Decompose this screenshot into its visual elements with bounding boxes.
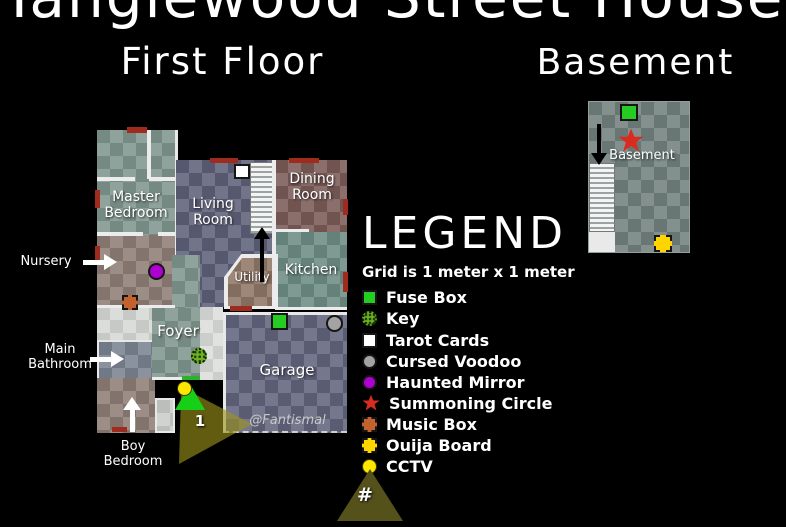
nursery-label: Nursery (12, 255, 80, 270)
basement-label: Basement (602, 149, 682, 164)
cctv-marker (177, 381, 192, 396)
music-box-marker (122, 295, 138, 310)
fuse-box-marker-basement (620, 104, 638, 121)
garage-label: Garage (242, 362, 332, 379)
door-marker (210, 158, 238, 163)
legend-item-haunted-mirror: Haunted Mirror (362, 372, 525, 392)
foyer-lower (152, 308, 200, 377)
ouija-board-marker (654, 235, 672, 252)
door-marker (230, 306, 252, 311)
basement-heading: Basement (533, 42, 738, 83)
door-marker (112, 427, 127, 432)
wall (149, 177, 175, 181)
tarot-cards-marker (234, 164, 250, 179)
main-bathroom-arrow (90, 357, 111, 362)
stairs-up-arrow (260, 238, 264, 282)
first-floor-heading: First Floor (120, 40, 325, 83)
legend-item-cctv: CCTV (362, 456, 433, 476)
nursery-arrow-head (104, 254, 117, 270)
master-bedroom-label: Master Bedroom (97, 190, 175, 221)
stairs-up-arrow-head (254, 227, 270, 239)
boy-bedroom-arrow (130, 409, 135, 432)
door-marker (127, 127, 147, 133)
cursed-voodoo-icon (362, 354, 377, 369)
foyer-hall-white (200, 307, 223, 380)
nursery-arrow (83, 260, 104, 265)
map-page: Tanglewood Street House First Floor Base… (0, 0, 786, 527)
wall (158, 232, 175, 236)
door-marker (289, 158, 319, 163)
legend-item-summoning-circle: Summoning Circle (362, 393, 552, 413)
legend-item-cursed-voodoo: Cursed Voodoo (362, 351, 521, 371)
legend-item-music-box: Music Box (362, 414, 477, 434)
wall (147, 130, 151, 179)
boy-bedroom-closet (155, 398, 175, 433)
key-marker (191, 348, 207, 364)
legend-item-fuse-box: Fuse Box (362, 287, 467, 307)
main-bathroom-label: Main Bathroom (28, 343, 92, 372)
front-door-marker (182, 376, 200, 380)
foyer-label: Foyer (150, 323, 206, 340)
haunted-mirror-marker (148, 263, 165, 280)
utility-label: Utility (228, 271, 276, 284)
tarot-cards-icon (362, 333, 377, 348)
legend-item-ouija-board: Ouija Board (362, 435, 492, 455)
dining-room-label: Dining Room (279, 172, 345, 203)
fuse-box-icon (362, 290, 377, 305)
legend-item-tarot-cards: Tarot Cards (362, 330, 489, 350)
legend-item-key: Key (362, 308, 419, 328)
cursed-voodoo-marker (326, 315, 343, 332)
kitchen-label: Kitchen (277, 263, 345, 279)
wall (272, 160, 276, 308)
main-bathroom-arrow-head (111, 351, 124, 367)
legend-grid-note: Grid is 1 meter x 1 meter (362, 263, 575, 281)
fuse-box-marker-garage (271, 313, 288, 330)
boy-bedroom-label: Boy Bedroom (95, 440, 171, 469)
basement-stairs (589, 163, 615, 232)
camera-cone-legend-symbol: # (355, 484, 375, 506)
watermark-credit: @Fantismal (245, 413, 330, 428)
music-box-icon (362, 417, 377, 432)
basement-down-arrow (597, 124, 601, 155)
key-icon (362, 311, 377, 326)
wall (97, 177, 135, 181)
ouija-board-icon (362, 438, 377, 453)
page-title: Tanglewood Street House (0, 0, 786, 31)
summoning-circle-icon (362, 395, 380, 412)
wall (275, 307, 347, 310)
haunted-mirror-icon (362, 375, 377, 390)
legend-heading: LEGEND (362, 208, 542, 259)
camera-1-number: 1 (190, 412, 210, 430)
boy-bedroom-arrow-head (123, 397, 141, 410)
living-room-label: Living Room (180, 197, 246, 228)
basement-stairs-landing (589, 232, 615, 252)
wall (97, 232, 143, 236)
wall (275, 229, 309, 232)
